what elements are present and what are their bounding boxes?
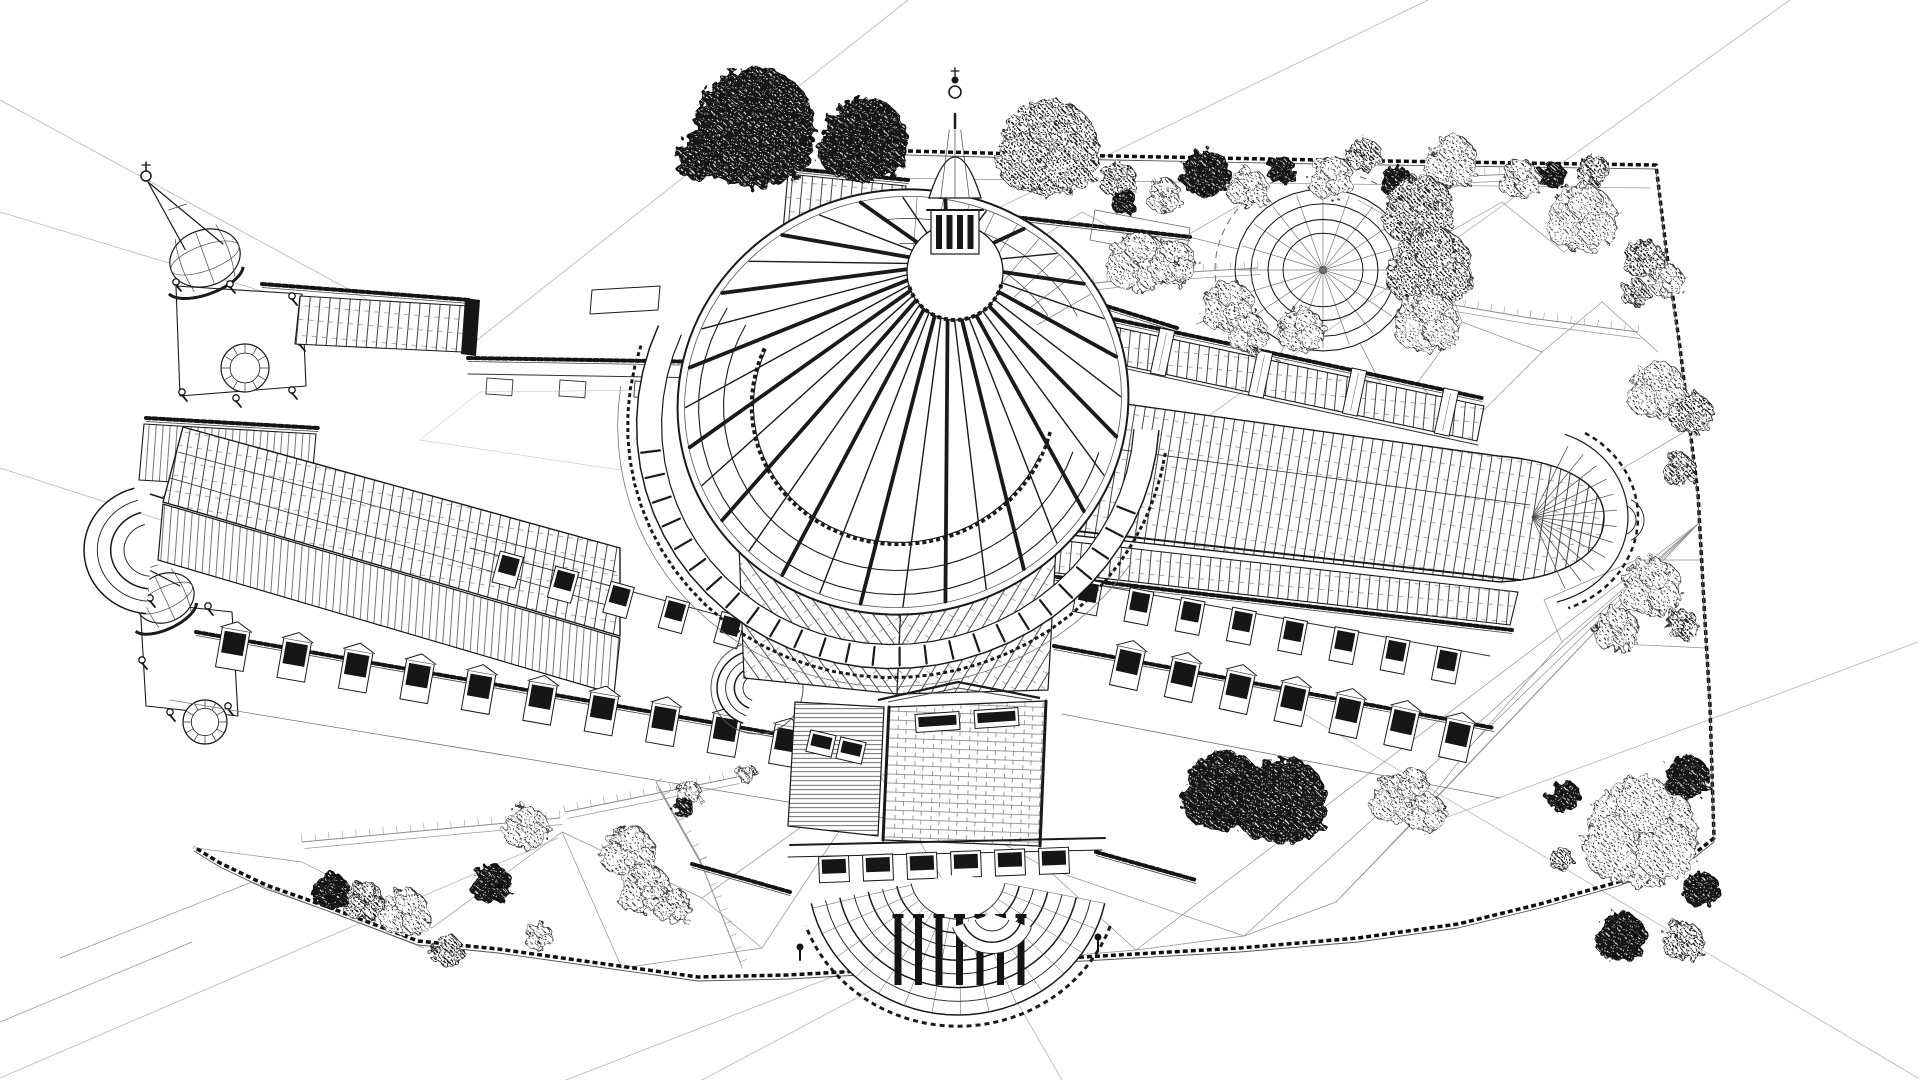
portico-niche bbox=[907, 852, 938, 879]
choir-lower-window bbox=[1162, 649, 1203, 703]
spire-edge bbox=[148, 182, 185, 250]
nave-upper-window bbox=[658, 596, 690, 633]
path-rung bbox=[505, 816, 506, 823]
tree-canopy-lobe bbox=[395, 890, 419, 914]
path-rung bbox=[1625, 323, 1626, 330]
path-rung bbox=[693, 844, 699, 847]
tree-canopy-lobe bbox=[356, 882, 376, 902]
window-glass bbox=[1445, 721, 1471, 747]
window-glass bbox=[1334, 630, 1355, 652]
tree-canopy-lobe bbox=[1125, 232, 1155, 262]
tree-canopy-lobe bbox=[690, 136, 713, 159]
path-edge bbox=[568, 784, 740, 819]
tree-canopy-lobe bbox=[441, 936, 457, 952]
dentil-base-line bbox=[692, 868, 790, 896]
portico-niche bbox=[863, 854, 894, 881]
path-rung bbox=[1107, 275, 1108, 282]
tree bbox=[676, 136, 722, 180]
path-rung bbox=[301, 835, 302, 842]
choir-upper-window bbox=[1175, 597, 1205, 635]
portico-niche bbox=[1039, 847, 1070, 874]
tree bbox=[526, 924, 553, 950]
construction-line bbox=[1294, 708, 1918, 1078]
path-rung bbox=[1598, 320, 1599, 327]
path-rung bbox=[559, 811, 560, 818]
tree-canopy-lobe bbox=[1617, 777, 1673, 833]
window-glass bbox=[467, 674, 492, 699]
tree-canopy-lobe bbox=[1413, 227, 1455, 269]
nave-lower-window bbox=[275, 630, 315, 683]
tree-canopy-lobe bbox=[1119, 190, 1131, 202]
path-rung bbox=[577, 802, 578, 809]
window-glass bbox=[528, 684, 553, 709]
tree-canopy-lobe bbox=[1558, 781, 1574, 797]
tree-canopy-lobe bbox=[1027, 99, 1077, 149]
path-rung bbox=[1464, 300, 1465, 307]
window-glass bbox=[1335, 697, 1361, 723]
tree-canopy-lobe bbox=[1672, 454, 1688, 470]
choir-upper-window bbox=[1278, 617, 1308, 655]
tree bbox=[1663, 454, 1695, 484]
transept-east-window bbox=[915, 712, 960, 733]
tree-canopy-lobe bbox=[1607, 608, 1629, 630]
tree bbox=[1667, 609, 1699, 639]
terrain-mesh-line bbox=[0, 942, 192, 1022]
window-glass bbox=[1232, 611, 1253, 633]
tree bbox=[738, 765, 757, 783]
tree-canopy-lobe bbox=[534, 924, 548, 938]
path-rung bbox=[710, 883, 717, 886]
choir-upper-window bbox=[1329, 627, 1359, 665]
path-rung bbox=[678, 818, 684, 821]
tree bbox=[313, 874, 349, 908]
tree bbox=[471, 865, 511, 903]
choir-upper-window bbox=[1124, 588, 1154, 626]
terrain-mesh-line bbox=[1602, 302, 1658, 352]
window-glass bbox=[651, 706, 676, 731]
choir-lower-window bbox=[1272, 673, 1313, 727]
tree-canopy-lobe bbox=[1112, 163, 1130, 181]
path-rung bbox=[329, 833, 330, 840]
window-glass bbox=[910, 855, 935, 870]
nave-lower-window bbox=[644, 694, 684, 747]
choir-upper-window bbox=[1380, 636, 1410, 674]
portico-column bbox=[895, 918, 902, 985]
tree-canopy-lobe bbox=[1414, 291, 1445, 322]
portico-column-capital bbox=[934, 914, 945, 918]
tree bbox=[819, 97, 907, 182]
path-rung bbox=[1638, 325, 1639, 332]
terrain-mesh-line bbox=[1622, 644, 1706, 648]
tree-canopy-lobe bbox=[1676, 609, 1692, 625]
tree-canopy-lobe bbox=[1217, 281, 1243, 307]
path-rung bbox=[356, 830, 357, 837]
window-glass bbox=[1385, 640, 1406, 662]
west-steps-fan bbox=[84, 488, 152, 613]
path-rung bbox=[478, 819, 479, 826]
window-glass bbox=[866, 857, 891, 872]
portico-niche bbox=[995, 849, 1026, 876]
tree-canopy-lobe bbox=[1694, 872, 1712, 890]
tree bbox=[1622, 280, 1649, 306]
terrain-mesh-line bbox=[1244, 902, 1336, 936]
path-edge bbox=[565, 777, 737, 812]
path-rung bbox=[396, 826, 397, 833]
transept-face-west bbox=[788, 702, 884, 836]
tree-canopy-lobe bbox=[1660, 265, 1677, 282]
spire-band bbox=[169, 204, 187, 210]
tree bbox=[674, 799, 693, 817]
path-rung bbox=[437, 822, 438, 829]
path-rung bbox=[617, 794, 618, 801]
tree-canopy-lobe bbox=[617, 826, 643, 852]
path-rung bbox=[1611, 322, 1612, 329]
path-rung bbox=[736, 770, 737, 777]
tree-canopy-lobe bbox=[1322, 157, 1344, 179]
terrain-mesh-line bbox=[1462, 322, 1542, 352]
path-rung bbox=[1478, 302, 1479, 309]
tree-canopy-lobe bbox=[324, 874, 342, 892]
portico-column bbox=[915, 918, 922, 985]
transept-east-window bbox=[974, 708, 1019, 729]
tree-canopy-lobe bbox=[744, 765, 753, 774]
path-rung bbox=[1584, 318, 1585, 325]
nave-parapet-balustrade bbox=[468, 358, 712, 362]
path-rung bbox=[1557, 315, 1558, 322]
tree-canopy-lobe bbox=[1157, 180, 1174, 197]
tree-canopy-lobe bbox=[1357, 139, 1374, 156]
wireframe-cathedral-aerial-scene bbox=[0, 0, 1920, 1080]
path-rung bbox=[735, 947, 742, 950]
tree bbox=[1683, 872, 1719, 906]
nave-lower-window bbox=[336, 640, 376, 693]
tree-canopy-lobe bbox=[1407, 769, 1423, 785]
fan-fill bbox=[84, 488, 152, 613]
tree-canopy-lobe bbox=[727, 67, 789, 129]
tree-canopy-lobe bbox=[1645, 361, 1674, 390]
window-glass bbox=[1280, 685, 1306, 711]
tree bbox=[1596, 913, 1646, 961]
window-glass bbox=[1170, 661, 1196, 687]
tree bbox=[1539, 163, 1566, 189]
window-glass bbox=[221, 631, 246, 656]
lantern-ball bbox=[949, 86, 961, 98]
garden-path bbox=[656, 779, 747, 969]
tree bbox=[1228, 169, 1268, 207]
tree bbox=[1278, 308, 1324, 352]
tree bbox=[1550, 848, 1573, 870]
portico-column-capital bbox=[913, 914, 924, 918]
tree bbox=[1147, 180, 1181, 212]
path-rung bbox=[630, 792, 631, 799]
lantern-window bbox=[947, 215, 953, 249]
tree bbox=[1663, 922, 1703, 960]
tree bbox=[1578, 155, 1610, 185]
tree-canopy-lobe bbox=[685, 781, 696, 792]
tree-canopy-lobe bbox=[1440, 136, 1466, 162]
nave-lower-window bbox=[398, 651, 438, 704]
tree bbox=[1620, 557, 1681, 616]
tree bbox=[344, 882, 384, 920]
path-rung bbox=[410, 825, 411, 832]
tree-canopy-lobe bbox=[1547, 163, 1561, 177]
tree-canopy-lobe bbox=[1264, 757, 1309, 802]
path-rung bbox=[722, 773, 723, 780]
portico-niche bbox=[951, 851, 982, 878]
tree-canopy-lobe bbox=[1164, 241, 1187, 264]
window-glass bbox=[1042, 850, 1067, 865]
path-rung bbox=[603, 797, 604, 804]
window-glass bbox=[1437, 650, 1458, 672]
tree bbox=[504, 807, 548, 849]
path-rung bbox=[725, 921, 732, 924]
tree-canopy-lobe bbox=[680, 799, 689, 808]
window-glass bbox=[1180, 601, 1201, 623]
tree bbox=[1398, 769, 1430, 799]
path-rung bbox=[464, 820, 465, 827]
window-glass bbox=[822, 859, 847, 874]
tree bbox=[1594, 608, 1638, 650]
window-glass bbox=[713, 717, 738, 742]
tree-canopy-lobe bbox=[1587, 155, 1603, 171]
tree bbox=[1499, 160, 1539, 198]
window-glass bbox=[1225, 673, 1251, 699]
roof-buttress bbox=[559, 380, 586, 398]
window-glass bbox=[954, 854, 979, 869]
portico-column-capital bbox=[893, 914, 904, 918]
tree-canopy-lobe bbox=[517, 807, 539, 829]
transept-face-east bbox=[883, 701, 1046, 846]
pinnacle-shaft bbox=[292, 393, 297, 399]
tree-canopy-lobe bbox=[1683, 393, 1704, 414]
tree-canopy-lobe bbox=[1292, 308, 1315, 331]
choir-lower-window bbox=[1382, 697, 1423, 751]
tree bbox=[1309, 157, 1353, 199]
transept-flank-balustrade bbox=[1096, 852, 1196, 880]
tree-canopy-lobe bbox=[1404, 175, 1439, 210]
path-rung bbox=[590, 800, 591, 807]
tree-canopy-lobe bbox=[1240, 314, 1260, 334]
tree-canopy-lobe bbox=[1196, 150, 1220, 174]
path-rung bbox=[383, 827, 384, 834]
lantern-window bbox=[968, 215, 974, 249]
nave-lower-window bbox=[459, 662, 499, 715]
nave-parapet-wall bbox=[468, 374, 710, 378]
path-rung bbox=[709, 776, 710, 783]
window-glass bbox=[1390, 709, 1416, 735]
portico-niche bbox=[819, 856, 850, 883]
north-aisle-roof bbox=[295, 296, 468, 352]
window-glass bbox=[998, 852, 1023, 867]
window-glass bbox=[1283, 620, 1304, 642]
nave-lower-window bbox=[521, 673, 561, 726]
portico-column-capital bbox=[954, 914, 965, 918]
tree bbox=[1549, 781, 1581, 811]
tree-canopy-lobe bbox=[1240, 169, 1260, 189]
nave-lower-window bbox=[582, 683, 622, 736]
path-rung bbox=[342, 831, 343, 838]
path-rung bbox=[1491, 304, 1492, 311]
pinnacle-shaft bbox=[170, 715, 175, 721]
pinnacle-shaft bbox=[236, 401, 241, 407]
wireframe-illustration-canvas bbox=[0, 0, 1920, 1080]
window-glass bbox=[590, 695, 615, 720]
tree-canopy-lobe bbox=[1611, 913, 1636, 938]
path-rung bbox=[451, 821, 452, 828]
path-rung bbox=[685, 831, 691, 834]
tree-canopy-lobe bbox=[1511, 160, 1531, 180]
window-glass bbox=[405, 663, 430, 688]
path-rung bbox=[315, 834, 316, 841]
path-rung bbox=[1571, 316, 1572, 323]
path-rung bbox=[715, 896, 722, 899]
choir-lower-window bbox=[1327, 685, 1368, 739]
tree-canopy-lobe bbox=[1636, 240, 1656, 260]
construction-line bbox=[0, 838, 558, 1078]
garden-path bbox=[564, 770, 740, 818]
window-glass bbox=[1116, 649, 1142, 675]
path-rung bbox=[1504, 307, 1505, 314]
terrain-mesh-line bbox=[1336, 832, 1404, 902]
path-rung bbox=[1517, 309, 1518, 316]
tree-canopy-lobe bbox=[666, 889, 684, 907]
path-rung bbox=[669, 784, 670, 791]
path-rung bbox=[740, 959, 747, 962]
window-glass bbox=[1129, 591, 1150, 613]
tree bbox=[1665, 756, 1709, 798]
path-rung bbox=[720, 908, 727, 911]
dentil-base-line bbox=[1096, 856, 1196, 884]
path-rung bbox=[656, 786, 657, 793]
choir-upper-window bbox=[1431, 646, 1461, 684]
flat-roof-outline bbox=[420, 390, 660, 470]
path-rung bbox=[564, 805, 565, 812]
terrain-mesh-line bbox=[60, 882, 252, 958]
north-block bbox=[590, 286, 660, 314]
spire-ball bbox=[141, 171, 151, 181]
tree-canopy-lobe bbox=[1675, 922, 1695, 942]
tree-canopy-lobe bbox=[1638, 557, 1668, 587]
tree bbox=[381, 890, 429, 936]
path-rung bbox=[730, 934, 737, 937]
choir-lower-window bbox=[1108, 637, 1149, 691]
parterre-long-spoke bbox=[1188, 237, 1238, 249]
tree-canopy-lobe bbox=[633, 864, 659, 890]
spire-edge bbox=[148, 182, 223, 244]
lantern-window bbox=[936, 215, 942, 249]
tree-canopy-lobe bbox=[1567, 184, 1601, 218]
lantern-window bbox=[957, 215, 963, 249]
tree-canopy-lobe bbox=[1630, 280, 1644, 294]
tree bbox=[1347, 139, 1381, 171]
tree-canopy-lobe bbox=[1557, 848, 1568, 859]
tree-canopy-lobe bbox=[1207, 751, 1248, 792]
tree bbox=[997, 99, 1098, 196]
choir-upper-window bbox=[1226, 607, 1256, 645]
tree-canopy-lobe bbox=[483, 865, 503, 885]
tree-canopy-lobe bbox=[1678, 756, 1700, 778]
roof-buttress bbox=[486, 378, 513, 396]
terrain-mesh-line bbox=[1544, 600, 1562, 642]
path-rung bbox=[491, 817, 492, 824]
window-glass bbox=[282, 641, 307, 666]
path-rung bbox=[643, 789, 644, 796]
path-rung bbox=[424, 824, 425, 831]
tree bbox=[1547, 184, 1616, 251]
tree-canopy-lobe bbox=[1276, 157, 1290, 171]
tree bbox=[432, 936, 464, 966]
window-glass bbox=[344, 652, 369, 677]
portico-column bbox=[936, 918, 943, 985]
choir-lower-window bbox=[1217, 661, 1258, 715]
path-rung bbox=[369, 829, 370, 836]
path-edge bbox=[656, 782, 740, 962]
portico-column-capital bbox=[1016, 914, 1027, 918]
tree-canopy-lobe bbox=[845, 97, 889, 141]
path-rung bbox=[1544, 313, 1545, 320]
